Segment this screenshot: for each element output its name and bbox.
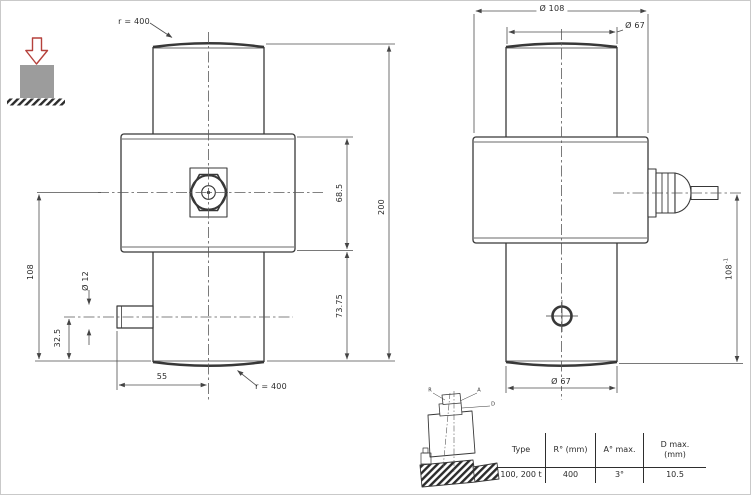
- radius-bottom-label: r = 400: [255, 383, 287, 391]
- side-view-dimensions: [474, 11, 743, 393]
- dim-gland-height-label: 108-1: [725, 258, 734, 280]
- dim-lower-height-label: 73.75: [336, 294, 344, 318]
- dim-pin-offset-label: 55: [157, 373, 168, 381]
- spec-header-type: Type: [497, 433, 545, 468]
- tilt-label-r: R: [428, 389, 431, 394]
- side-center-body: [473, 137, 648, 243]
- compression-load-icon: [7, 38, 65, 106]
- dim-body-height-label: 68.5: [336, 184, 344, 203]
- dim-pin-height-label: 32.5: [54, 329, 62, 348]
- dim-total-height-label: 200: [378, 199, 386, 215]
- spec-value-d-max: 10.5: [643, 468, 706, 483]
- dim-connector-height-label: 108: [27, 264, 35, 280]
- spec-table: Type R° (mm) A° max. D max. (mm) 100, 20…: [497, 433, 706, 483]
- tilt-label-d: D: [491, 403, 495, 408]
- load-block: [20, 65, 54, 98]
- spec-header-a-max: A° max.: [595, 433, 643, 468]
- tilt-body: [428, 411, 475, 457]
- tilt-base-step-hatch: [473, 463, 499, 482]
- ground-hatch: [7, 99, 65, 106]
- tilt-diagram: [420, 391, 499, 487]
- radius-top-leader: [150, 23, 172, 38]
- dim-pin-diameter-label: Ø 12: [82, 271, 90, 291]
- radius-top-label: r = 400: [118, 18, 150, 26]
- spec-value-a-max: 3°: [595, 468, 643, 483]
- dim-top-diameter-label: Ø 67: [625, 22, 645, 30]
- dimensional-drawing-page: r = 400 r = 400 68.5 200 73.75 108 Ø 12 …: [0, 0, 751, 495]
- spec-value-r: 400: [545, 468, 595, 483]
- dim-gland-height-value: 108: [725, 264, 734, 280]
- dim-gland-height-tolerance: -1: [724, 258, 730, 263]
- dim-body-diameter-label: Ø 108: [536, 5, 567, 13]
- down-arrow-icon: [26, 38, 48, 64]
- spec-header-r: R° (mm): [545, 433, 595, 468]
- dim-bottom-diameter-label: Ø 67: [548, 378, 574, 386]
- spec-header-d-max: D max. (mm): [643, 433, 706, 468]
- radius-bottom-leader: [238, 371, 258, 387]
- tilt-label-a: A: [477, 389, 480, 394]
- technical-drawing-canvas: [1, 1, 751, 495]
- side-view-geometry: [473, 44, 718, 366]
- spec-value-type: 100, 200 t: [497, 468, 545, 483]
